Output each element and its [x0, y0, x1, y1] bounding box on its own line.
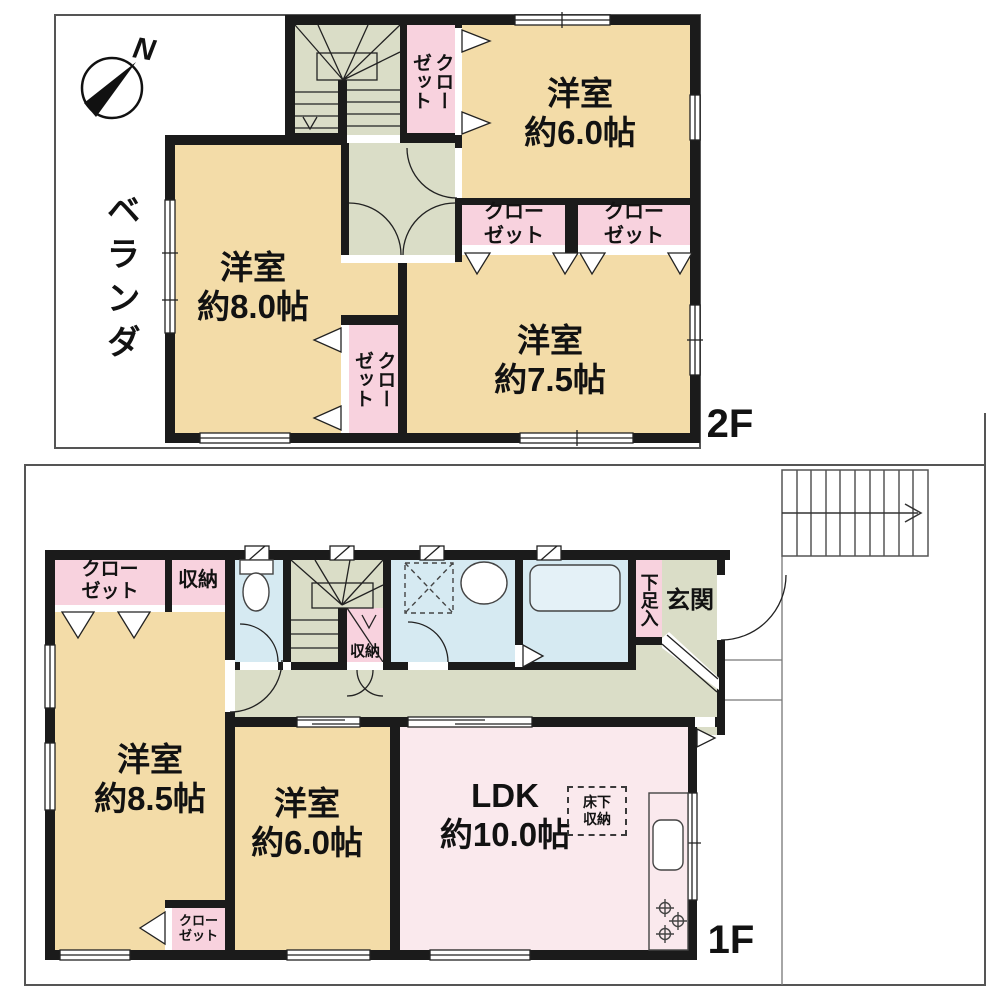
exterior-stairs-icon: [782, 470, 928, 556]
bathtub-icon: [530, 565, 620, 611]
floorplan: N ベランダ 洋室 約6.0帖 洋室 約8.0帖 洋室 約7.5帖 クロー ゼッ…: [0, 0, 1000, 1000]
veranda-label: ベランダ: [95, 175, 145, 385]
kitchen-sink-icon: [653, 820, 683, 870]
compass-n-label: N: [121, 27, 167, 73]
closet-2f-mid-left-label: クロー ゼット: [463, 202, 565, 248]
toilet-icon: [243, 573, 269, 611]
closet-1f-sw-label: クロー ゼット: [172, 906, 225, 950]
room-2f-60-label: 洋室 約6.0帖: [470, 66, 690, 161]
room-2f-75-label: 洋室 約7.5帖: [440, 313, 660, 408]
floor1-label: 1F: [700, 916, 762, 966]
closet-1f-nw-label: クロー ゼット: [56, 556, 164, 606]
room-1f-85-label: 洋室 約8.5帖: [60, 732, 240, 827]
kitchen-counter: [649, 793, 688, 950]
underfloor-storage-label: 床下 収納: [567, 786, 627, 836]
storage-1f-nw-label: 収納: [169, 556, 227, 606]
floor1-plan: [25, 413, 985, 985]
toilet-tank-icon: [240, 560, 273, 574]
shoe-storage-label: 下足入: [633, 558, 663, 642]
room-1f-60-label: 洋室 約6.0帖: [227, 778, 387, 870]
stair-storage-label: 収納: [343, 638, 387, 666]
entrance-label: 玄関: [661, 584, 719, 618]
washbasin-icon: [461, 562, 507, 604]
closet-2f-mid-right-label: クロー ゼット: [578, 202, 690, 248]
room-2f-80-label: 洋室 約8.0帖: [163, 240, 343, 335]
closet-2f-upper-label: クロー ゼット: [404, 28, 458, 134]
floor2-label: 2F: [700, 400, 760, 450]
closet-2f-lower-label: クロー ゼット: [347, 327, 399, 431]
